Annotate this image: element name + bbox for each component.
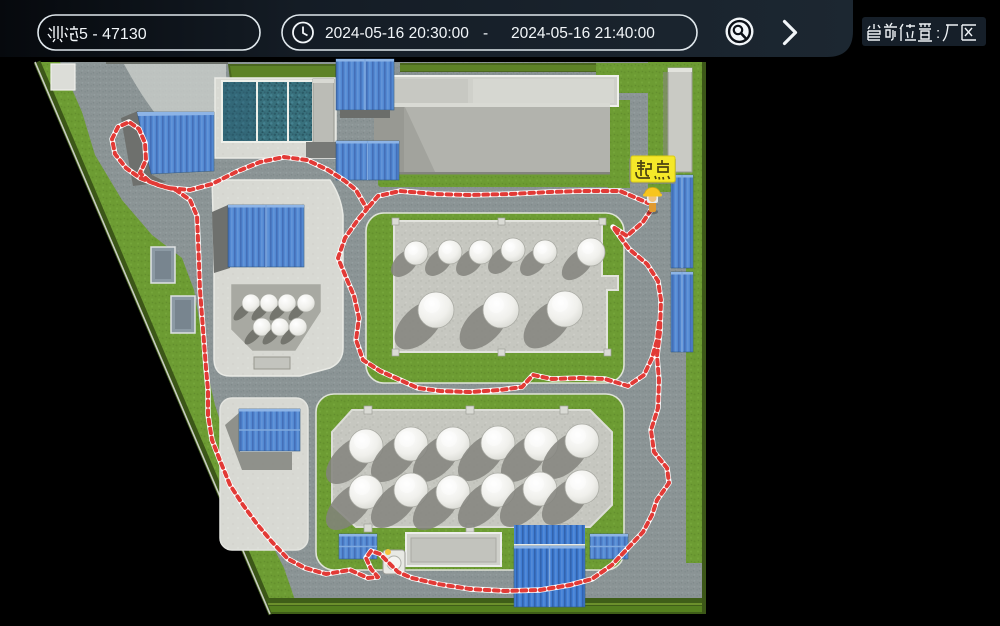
svg-text:-: - [483,25,488,42]
svg-text:2024-05-16 21:40:00: 2024-05-16 21:40:00 [511,25,655,42]
svg-text:2024-05-16 20:30:00: 2024-05-16 20:30:00 [325,25,469,42]
svg-text:5 - 47130: 5 - 47130 [79,26,147,43]
svg-text::: : [936,25,940,42]
